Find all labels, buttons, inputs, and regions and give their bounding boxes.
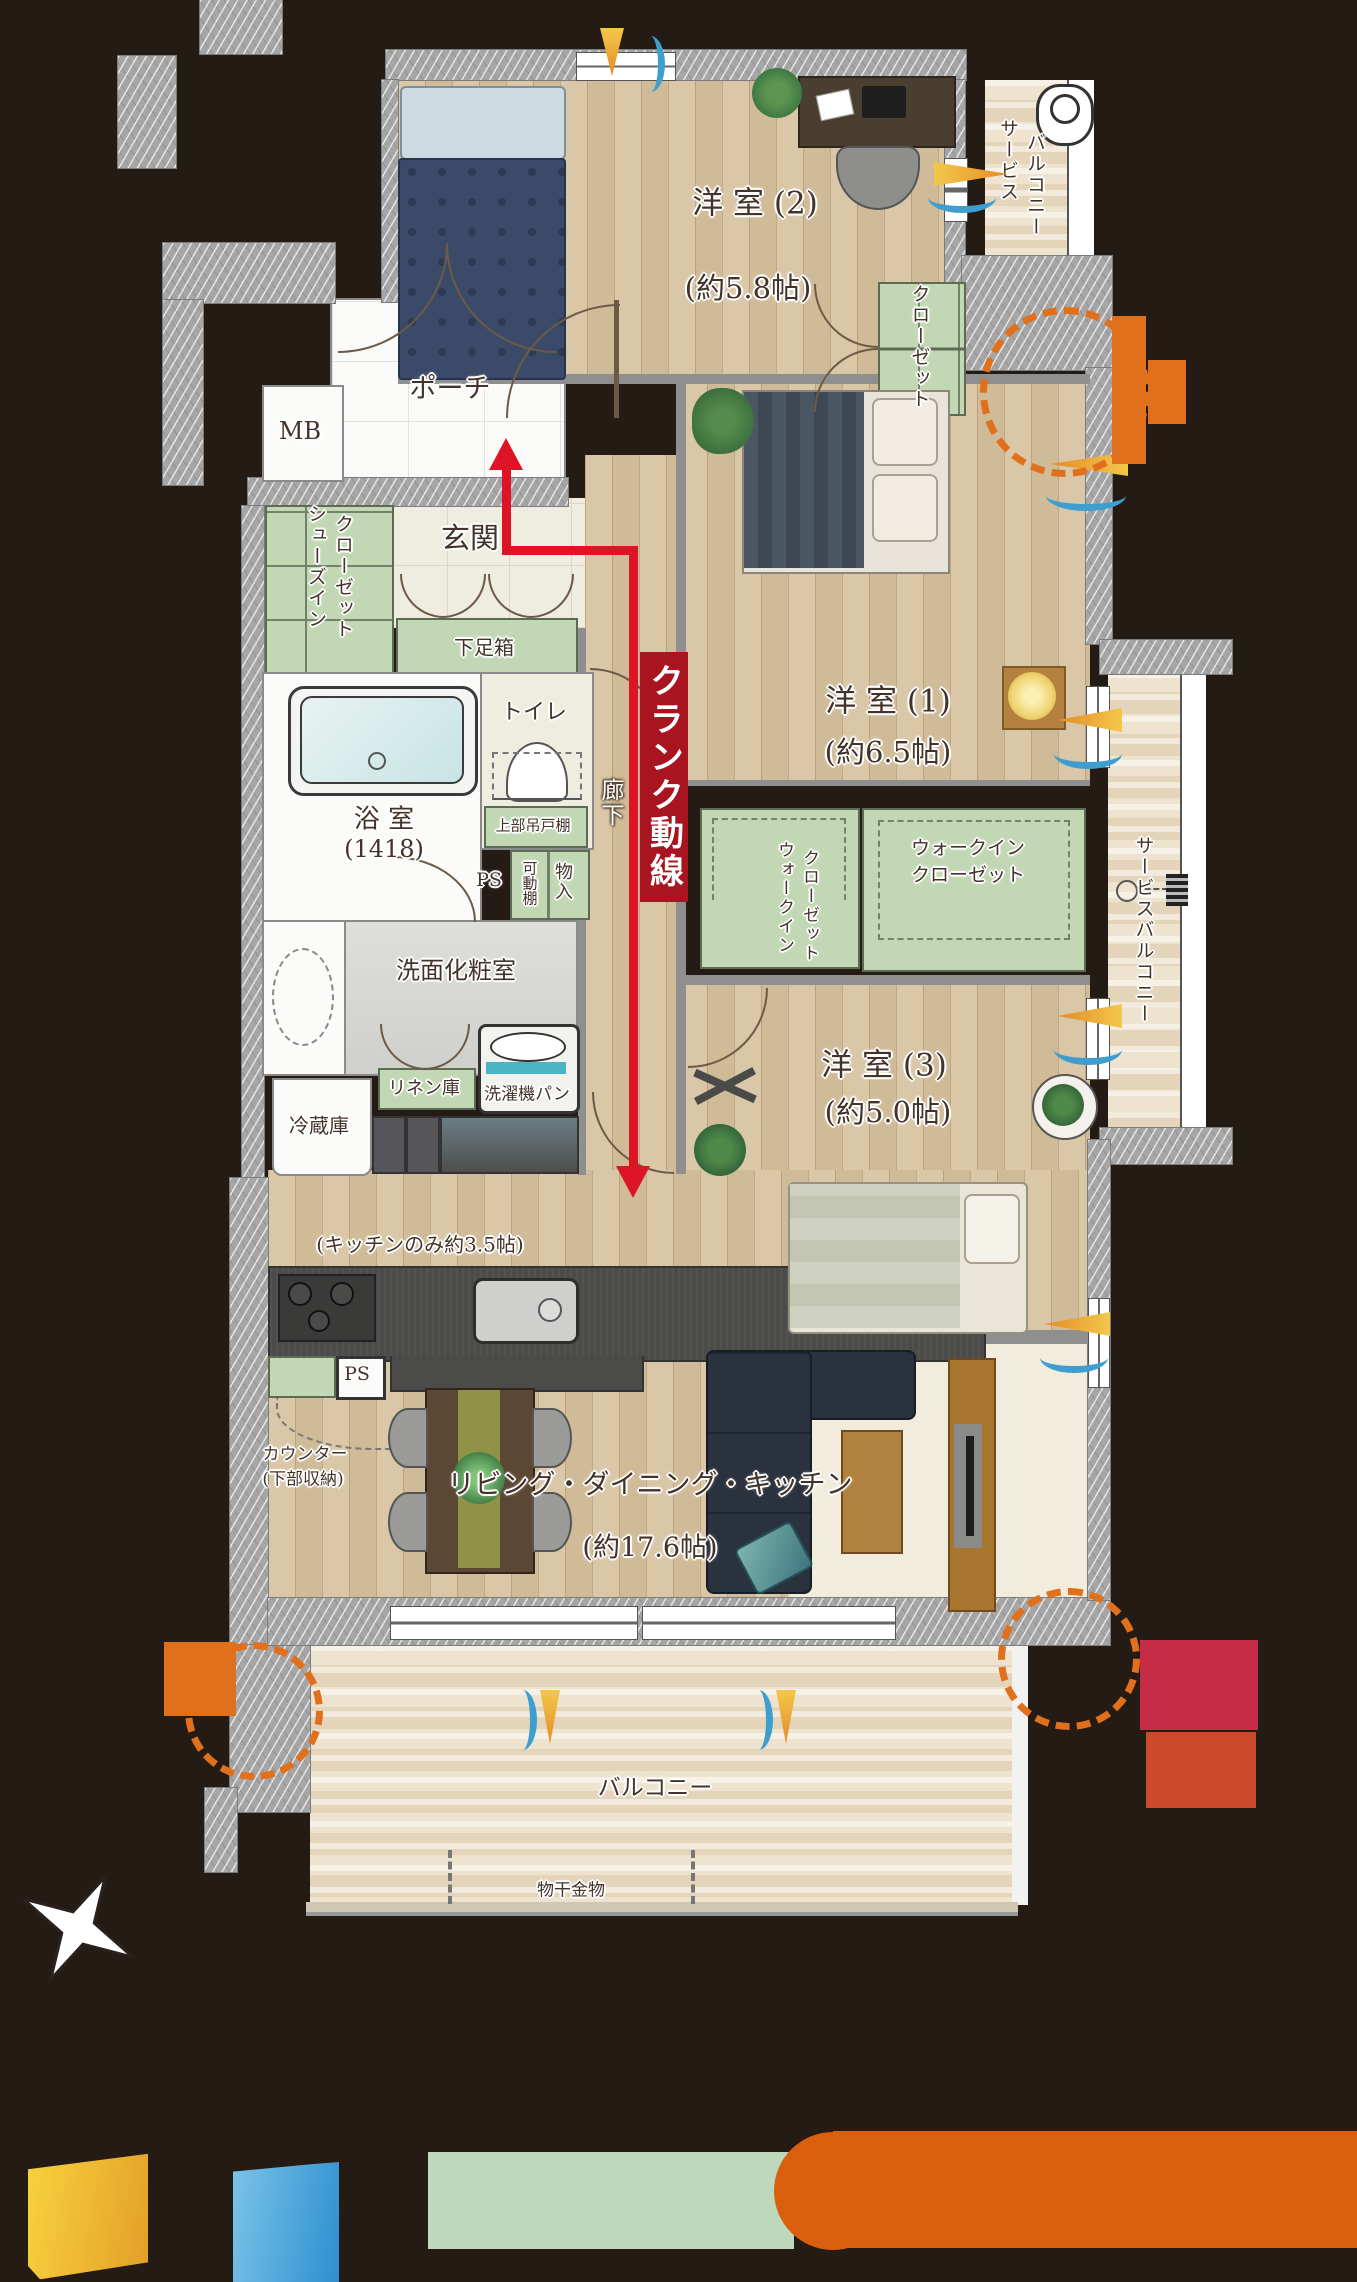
chair-3: [532, 1408, 572, 1468]
label-washroom: 洗面化粧室: [396, 951, 516, 986]
label-wic-right-line1: ウォークイン: [911, 833, 1025, 860]
flow-vertical: [629, 546, 638, 1168]
flow-banner-label: クランク動線: [640, 663, 689, 891]
kitchen-cabinet-1: [372, 1116, 406, 1174]
bed1-pillow-2: [872, 474, 938, 542]
label-bathroom-size: (1418): [344, 835, 424, 863]
label-sic-line2: クローゼット: [330, 514, 357, 640]
flow-arrowhead-up: [489, 438, 523, 470]
label-western1: 洋 室 (1): [825, 676, 951, 721]
wind-wave-balcony-1: [508, 1690, 537, 1750]
desk-laptop: [862, 86, 906, 118]
floor-plan-canvas: クランク動線 洋 室 (2) (約5.8帖) サービス バルコニー クローゼット…: [0, 0, 1357, 2282]
stove-burner-3: [308, 1310, 330, 1332]
bed2-pillow: [400, 86, 566, 160]
label-counter-sub: (下部収納): [262, 1465, 343, 1490]
label-wic-left: ウォークイン クローゼット: [772, 841, 822, 963]
label-sic-line1: シューズイン: [303, 504, 330, 640]
label-balcony: バルコニー: [598, 1768, 713, 1802]
label-bathroom: 浴 室: [354, 799, 414, 836]
flow-horizontal: [502, 546, 638, 555]
wind-wave-right-2: [1054, 738, 1122, 769]
lantern-glow: [1008, 672, 1056, 720]
washer-top: [490, 1032, 566, 1062]
wind-wave-right-1: [1046, 480, 1126, 511]
label-ps-kitchen: PS: [344, 1363, 370, 1385]
wall-porch-top: [163, 243, 335, 303]
bed3-blanket: [790, 1184, 960, 1328]
washer-band: [486, 1062, 566, 1074]
label-wic-left-line1: ウォークイン: [772, 841, 797, 963]
label-service-balcony-top: サービス バルコニー: [995, 119, 1049, 238]
wall-above-right-balcony: [1100, 640, 1232, 674]
balcony-outer-rail: [306, 1902, 1018, 1916]
wall-left-mid: [242, 506, 264, 1178]
label-wic-right: ウォークイン クローゼット: [911, 833, 1025, 887]
bed3-pillow: [964, 1194, 1020, 1264]
label-wic-right-line2: クローゼット: [911, 860, 1025, 887]
stove-burner-1: [288, 1282, 312, 1306]
label-getabako: 下足箱: [454, 632, 514, 661]
wall-balcony-left-step: [205, 1788, 237, 1872]
plant-stand: [694, 1124, 746, 1176]
label-upper-cabinet: 上部吊戸棚: [495, 815, 570, 836]
legend-swatch-yellow: [28, 2154, 148, 2280]
label-mb: MB: [279, 417, 321, 445]
legend-swatch-green: [428, 2152, 794, 2249]
accent-dashed-circle-bottom-right: [998, 1588, 1140, 1730]
kitchen-cabinet-3: [440, 1116, 579, 1174]
label-ps-bath: PS: [476, 869, 502, 891]
chair-1: [388, 1408, 428, 1468]
label-service-balcony-right: サービスバルコニー: [1131, 836, 1158, 1025]
wind-wave-sb-top: [928, 182, 996, 213]
label-laundry-hardware: 物干金物: [537, 1876, 605, 1901]
kitchen-cabinet-2: [406, 1116, 440, 1174]
sink-drain: [538, 1298, 562, 1322]
label-western2: 洋 室 (2): [692, 178, 818, 223]
laundry-hook-right: [691, 1850, 695, 1904]
legend-swatch-orange-band: [833, 2131, 1357, 2248]
label-western1-size: (約6.5帖): [825, 729, 952, 771]
label-toilet: トイレ: [501, 694, 567, 726]
bathtub-drain: [368, 752, 386, 770]
label-shoes-in-closet: シューズイン クローゼット: [303, 504, 357, 640]
compass-icon: [14, 1872, 142, 1984]
chair-2: [388, 1492, 428, 1552]
wall-top-left-a: [200, 0, 282, 54]
wall-porch-genkan-band: [248, 478, 568, 506]
wall-w1-w3-divider: [676, 975, 1090, 985]
label-entrance: 玄関: [441, 515, 499, 557]
toilet-tank-dashed: [492, 752, 582, 800]
plant-western3-leaves: [1042, 1084, 1084, 1126]
label-counter: カウンター: [263, 1440, 348, 1465]
wind-wave-top: [636, 36, 665, 92]
plant-western2: [752, 68, 802, 118]
label-sb-top-line1: サービス: [995, 119, 1022, 238]
accent-block-bottom-right-2: [1146, 1732, 1256, 1808]
label-linen: リネン庫: [388, 1074, 460, 1100]
label-wic-left-line2: クローゼット: [797, 849, 822, 963]
wall-left-lower: [230, 1178, 268, 1645]
label-fridge: 冷蔵庫: [289, 1110, 349, 1139]
label-western3: 洋 室 (3): [821, 1040, 947, 1085]
vanity-sink-dashed: [272, 948, 334, 1046]
tv-screen: [966, 1436, 974, 1536]
accent-block-bottom-right-1: [1140, 1640, 1258, 1730]
counter-storage-box: [268, 1356, 336, 1398]
stove-burner-2: [330, 1282, 354, 1306]
label-kitchen-note: (キッチンのみ約3.5帖): [316, 1229, 523, 1258]
window-ldk-right: [1088, 1298, 1110, 1388]
label-western3-size: (約5.0帖): [825, 1089, 952, 1131]
wall-wic-top: [680, 780, 1090, 786]
label-western2-size: (約5.8帖): [685, 265, 812, 307]
bed1-duvet: [744, 392, 864, 568]
label-washer-pan: 洗濯機パン: [484, 1080, 570, 1105]
bathtub-water: [300, 696, 464, 784]
wall-top-left-b: [118, 56, 176, 168]
label-corridor: 廊下: [593, 778, 627, 828]
window-ldk-balcony-right: [642, 1606, 896, 1640]
label-movable-shelf: 可動棚: [520, 861, 541, 906]
flow-shaft-porch: [502, 468, 511, 552]
legend-swatch-blue: [233, 2162, 339, 2282]
label-ldk: リビング・ダイニング・キッチン: [448, 1463, 853, 1502]
accent-dashed-circle-top-right: [980, 307, 1150, 477]
label-ldk-size: (約17.6帖): [582, 1526, 717, 1565]
sb-right-grate: [1166, 874, 1188, 906]
accent-dashed-circle-bottom-left: [185, 1642, 323, 1780]
sb-top-planter-hole: [1050, 94, 1080, 124]
flow-arrowhead-down: [616, 1166, 650, 1198]
wind-wave-right-3: [1054, 1034, 1122, 1065]
wall-below-right-balcony: [1100, 1128, 1232, 1164]
flow-banner: クランク動線: [640, 652, 688, 902]
label-sb-top-line2: バルコニー: [1022, 133, 1049, 238]
kitchen-counter-island: [390, 1356, 644, 1392]
label-storage-in: 物入: [549, 862, 575, 902]
laundry-hook-left: [448, 1850, 452, 1904]
window-ldk-balcony-left: [390, 1606, 638, 1640]
wind-wave-right-4: [1040, 1342, 1108, 1373]
label-porch: ポーチ: [410, 367, 491, 406]
wall-porch-left: [163, 300, 203, 485]
sink: [473, 1278, 579, 1344]
wind-wave-balcony-2: [744, 1690, 773, 1750]
label-closet: クローゼット: [907, 284, 934, 410]
accent-bar-top-right-2: [1148, 360, 1186, 424]
